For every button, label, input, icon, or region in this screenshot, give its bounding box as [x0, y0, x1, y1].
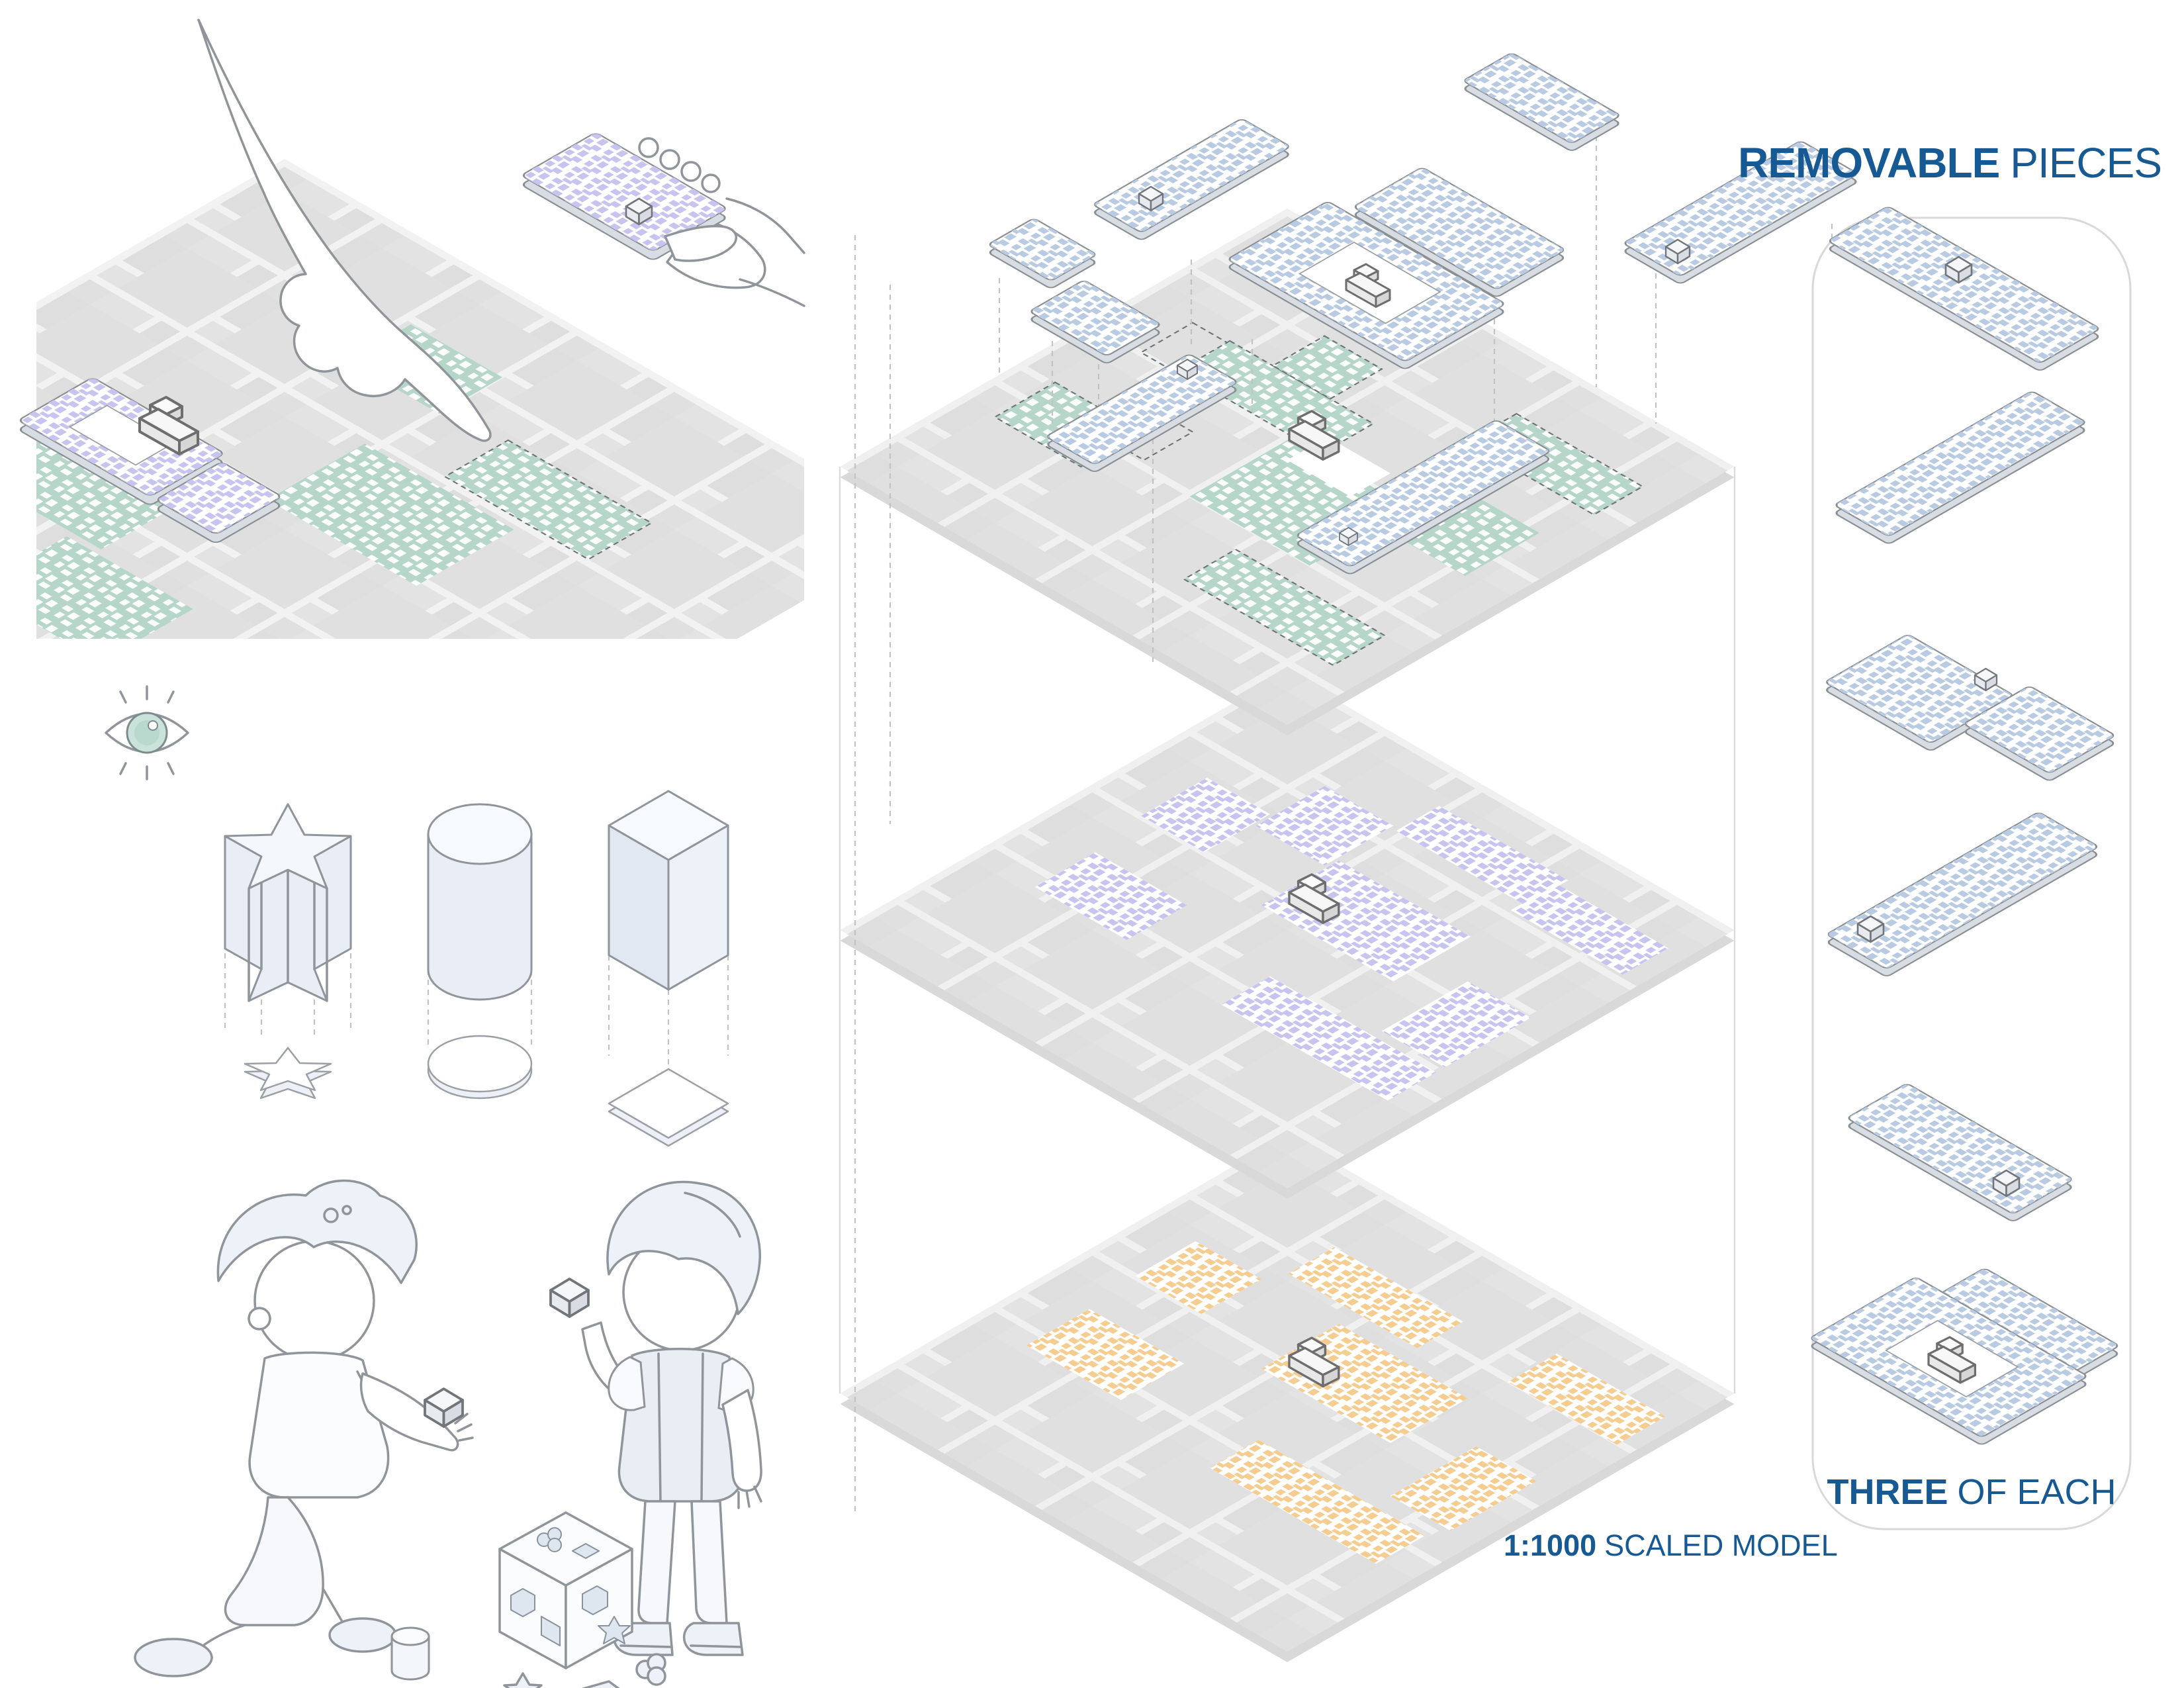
- star-prism: [225, 804, 351, 1098]
- cube: [609, 791, 728, 1146]
- removable-piece: [1093, 118, 1291, 241]
- scale-caption: 1:1000SCALED MODEL: [1504, 1528, 1838, 1562]
- hand-placement-scene: [0, 20, 927, 900]
- model-layer-bottom: [841, 1135, 1735, 1662]
- cylinder: [428, 804, 531, 1098]
- removable-pieces-panel: THREEOF EACH: [1810, 207, 2130, 1530]
- shape-sorter-shapes: [225, 791, 728, 1146]
- exploded-model: [840, 53, 1858, 1663]
- cylinder-block: [392, 1628, 429, 1679]
- children-playing-scene: [135, 1181, 761, 1688]
- poster: REMOVABLEPIECES: [0, 0, 2184, 1688]
- removable-piece: [988, 218, 1097, 289]
- eye-icon: [106, 686, 188, 779]
- model-layer-middle: [841, 672, 1735, 1199]
- removable-pieces-title: REMOVABLEPIECES: [1738, 139, 2161, 187]
- removable-piece: [1463, 53, 1620, 152]
- block-icon: [551, 1279, 588, 1317]
- kneeling-child: [135, 1181, 473, 1677]
- three-of-each-label: THREEOF EACH: [1827, 1472, 2116, 1512]
